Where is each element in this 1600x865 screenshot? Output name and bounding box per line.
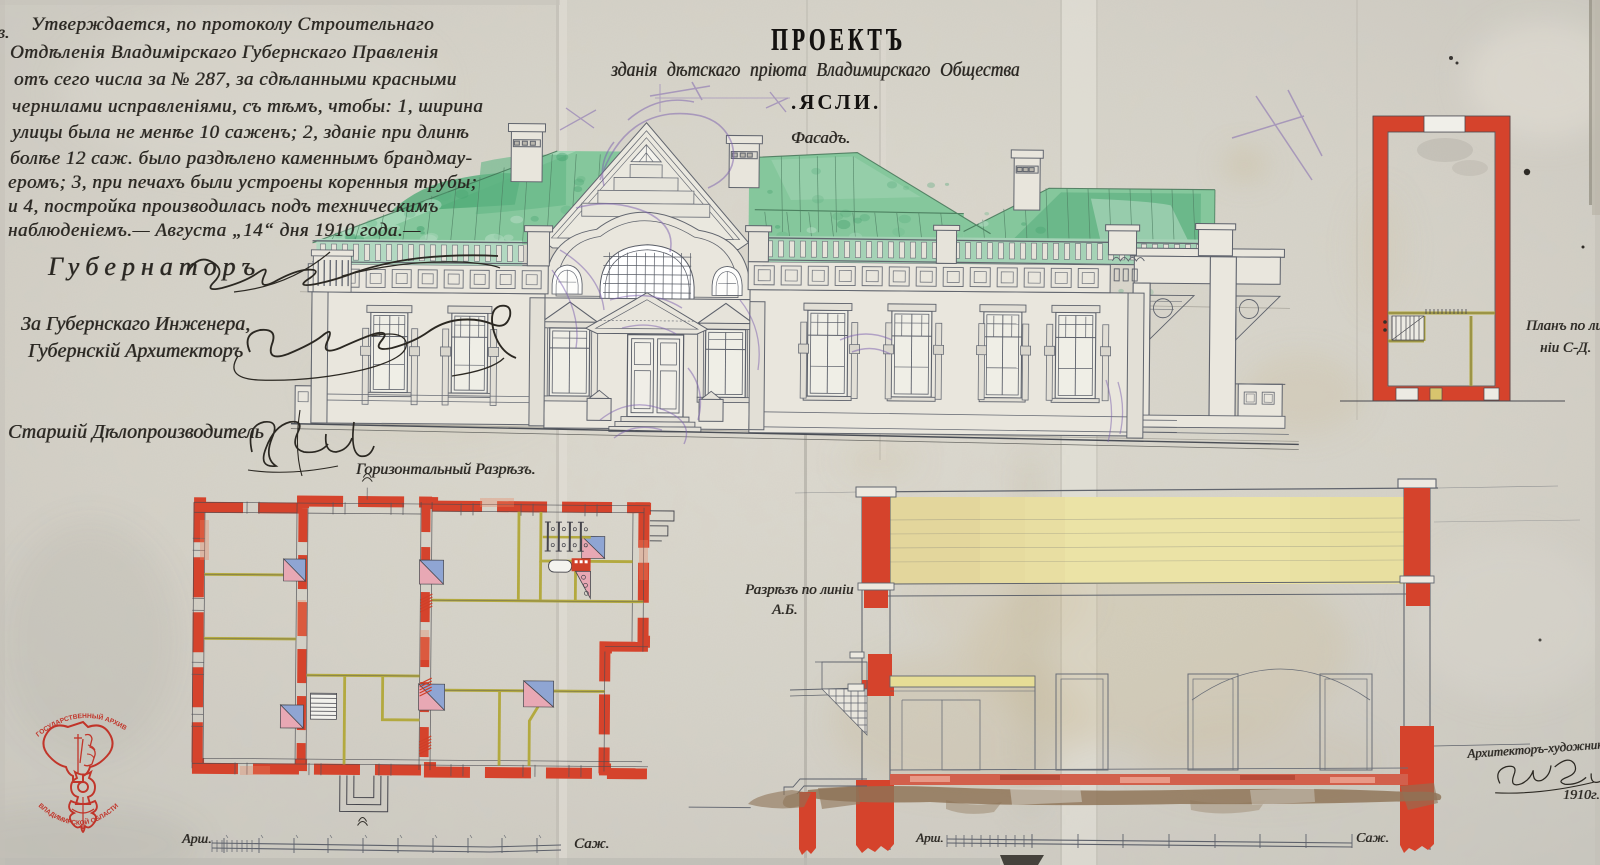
svg-text:ВЛАДИМИРСКОЙ ОБЛАСТИ: ВЛАДИМИРСКОЙ ОБЛАСТИ bbox=[37, 802, 120, 827]
svg-text:ГОСУДАРСТВЕННЫЙ АРХИВ: ГОСУДАРСТВЕННЫЙ АРХИВ bbox=[35, 712, 128, 738]
